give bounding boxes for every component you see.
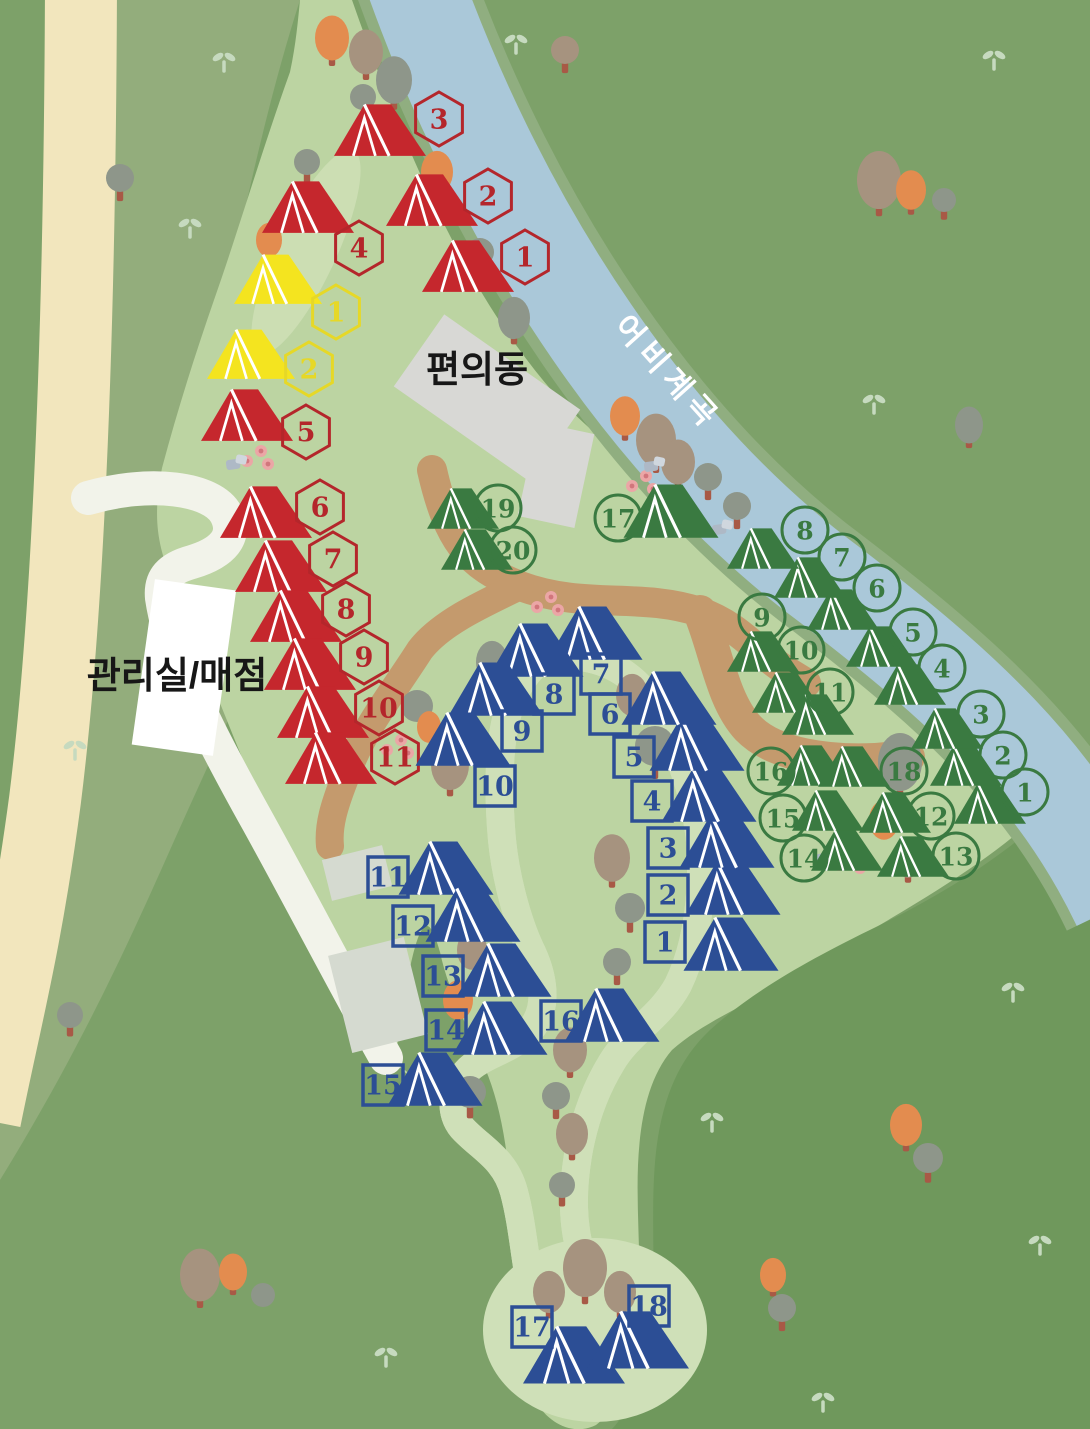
svg-text:11: 11 (369, 863, 407, 894)
svg-text:16: 16 (754, 758, 789, 787)
svg-text:18: 18 (630, 1292, 668, 1323)
svg-text:2: 2 (659, 881, 678, 912)
blue-site-number-16: 16 (541, 1001, 581, 1041)
svg-text:17: 17 (513, 1313, 551, 1344)
svg-text:15: 15 (766, 805, 801, 834)
blue-site-number-14: 14 (426, 1010, 466, 1050)
svg-text:9: 9 (355, 643, 374, 674)
blue-site-number-11: 11 (368, 857, 408, 897)
svg-text:1: 1 (516, 243, 535, 274)
label-convenience: 편의동 (426, 349, 528, 390)
svg-text:11: 11 (376, 743, 414, 774)
svg-text:4: 4 (933, 655, 950, 684)
svg-text:4: 4 (350, 234, 369, 265)
blue-site-number-10: 10 (475, 766, 515, 806)
svg-text:4: 4 (643, 787, 662, 818)
blue-site-number-13: 13 (423, 956, 463, 996)
svg-text:15: 15 (364, 1071, 402, 1102)
svg-text:5: 5 (297, 418, 316, 449)
svg-text:2: 2 (300, 355, 319, 386)
svg-text:13: 13 (939, 843, 974, 872)
svg-text:1: 1 (327, 298, 346, 329)
blue-site-number-18: 18 (629, 1286, 669, 1326)
svg-text:2: 2 (994, 742, 1011, 771)
svg-text:3: 3 (659, 834, 678, 865)
svg-text:8: 8 (337, 595, 356, 626)
campground-map: 1234567891011121234567891011121314151617… (0, 0, 1090, 1429)
svg-text:17: 17 (601, 505, 636, 534)
svg-text:14: 14 (427, 1016, 465, 1047)
svg-text:10: 10 (476, 772, 514, 803)
svg-text:11: 11 (813, 679, 848, 708)
svg-text:18: 18 (887, 758, 922, 787)
blue-site-number-17: 17 (512, 1307, 552, 1347)
blue-site-number-15: 15 (363, 1065, 403, 1105)
svg-text:19: 19 (481, 495, 516, 524)
svg-text:7: 7 (324, 545, 343, 576)
svg-text:1: 1 (656, 928, 675, 959)
svg-text:5: 5 (904, 619, 921, 648)
svg-text:7: 7 (833, 544, 850, 573)
label-office-store: 관리실/매점 (87, 655, 267, 696)
svg-text:3: 3 (972, 701, 989, 730)
svg-text:6: 6 (311, 493, 330, 524)
svg-text:13: 13 (424, 962, 462, 993)
tree-gray-round (251, 1283, 275, 1307)
svg-text:3: 3 (430, 105, 449, 136)
svg-text:6: 6 (601, 700, 620, 731)
svg-text:20: 20 (496, 537, 531, 566)
svg-text:6: 6 (868, 575, 885, 604)
blue-site-number-12: 12 (393, 906, 433, 946)
svg-text:14: 14 (787, 845, 822, 874)
svg-text:16: 16 (542, 1007, 580, 1038)
svg-text:9: 9 (753, 604, 770, 633)
building-convenience-annex-wing (509, 427, 545, 463)
svg-text:2: 2 (479, 182, 498, 213)
svg-text:12: 12 (394, 912, 432, 943)
svg-text:8: 8 (796, 517, 813, 546)
svg-text:1: 1 (1016, 779, 1033, 808)
svg-text:12: 12 (914, 803, 949, 832)
svg-text:10: 10 (784, 637, 819, 666)
svg-text:7: 7 (592, 660, 611, 691)
svg-text:10: 10 (360, 694, 398, 725)
svg-text:5: 5 (625, 743, 644, 774)
svg-text:8: 8 (545, 680, 564, 711)
svg-text:9: 9 (513, 717, 532, 748)
